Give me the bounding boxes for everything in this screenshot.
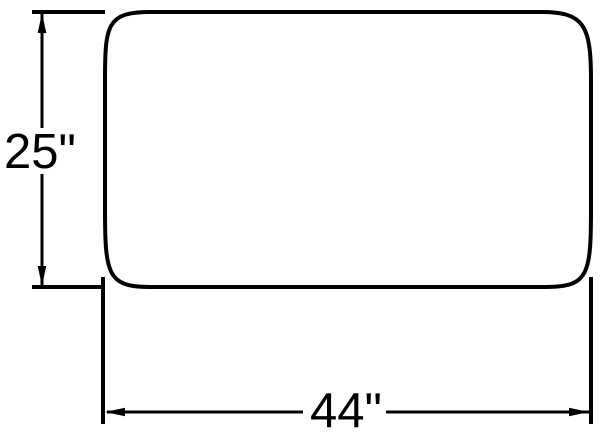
height-dimension-label: 25" — [4, 125, 76, 179]
arrow-down-icon — [38, 266, 47, 286]
arrow-right-icon — [569, 408, 589, 417]
width-dimension-label: 44" — [310, 384, 382, 438]
arrow-left-icon — [105, 408, 125, 417]
technical-drawing: 25" 44" — [0, 0, 600, 444]
arrow-up-icon — [38, 13, 47, 33]
width-dimension: 44" — [103, 277, 591, 438]
drawing-canvas: 25" 44" — [0, 0, 600, 444]
rounded-rectangle-outline — [105, 12, 591, 287]
height-dimension: 25" — [4, 12, 105, 287]
